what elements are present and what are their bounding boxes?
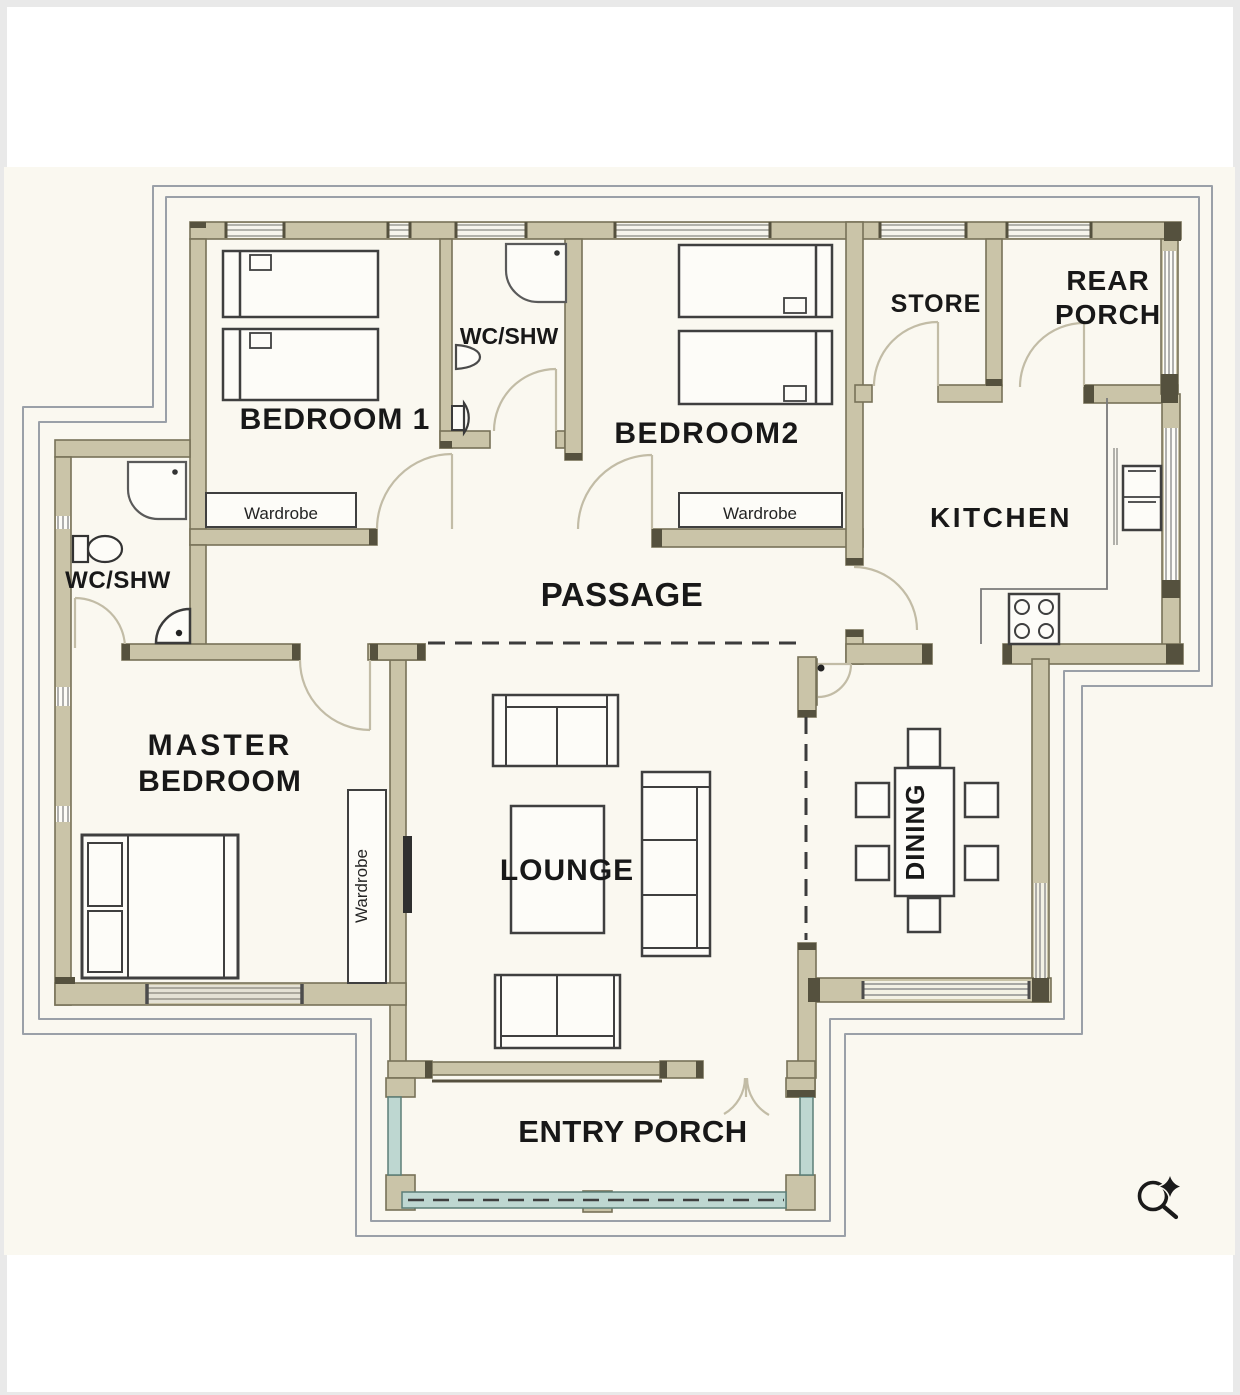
svg-text:MASTER: MASTER xyxy=(148,729,293,762)
svg-text:ENTRY PORCH: ENTRY PORCH xyxy=(518,1114,747,1149)
svg-text:Wardrobe: Wardrobe xyxy=(352,849,371,923)
svg-text:Wardrobe: Wardrobe xyxy=(244,504,318,523)
svg-text:WC/SHW: WC/SHW xyxy=(460,323,559,349)
svg-text:LOUNGE: LOUNGE xyxy=(500,854,634,887)
svg-text:STORE: STORE xyxy=(891,290,982,318)
svg-text:BEDROOM 1: BEDROOM 1 xyxy=(240,403,431,436)
svg-text:PASSAGE: PASSAGE xyxy=(541,576,703,613)
svg-text:DINING: DINING xyxy=(900,784,930,881)
svg-text:WC/SHW: WC/SHW xyxy=(65,567,171,594)
svg-text:BEDROOM: BEDROOM xyxy=(138,765,302,798)
svg-text:PORCH: PORCH xyxy=(1055,299,1161,330)
svg-text:BEDROOM2: BEDROOM2 xyxy=(614,417,799,450)
svg-text:KITCHEN: KITCHEN xyxy=(930,502,1072,533)
svg-text:Wardrobe: Wardrobe xyxy=(723,504,797,523)
svg-text:REAR: REAR xyxy=(1066,265,1149,296)
